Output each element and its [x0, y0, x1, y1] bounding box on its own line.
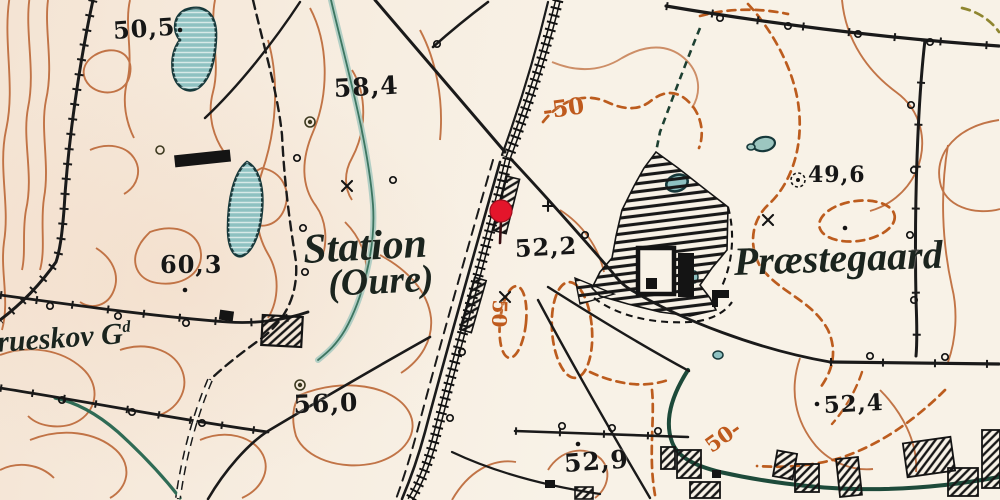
elevation-label-58-4: 58,4: [333, 71, 399, 103]
contour-label-50-top: -50: [541, 92, 586, 125]
elevation-label-60-3: 60,3: [160, 250, 222, 279]
elevation-label-52-9: 52,9: [563, 444, 630, 477]
elevation-label-52-2: 52,2: [514, 231, 578, 263]
road-east: [915, 40, 925, 356]
elevation-label-49-6: 49,6: [808, 162, 866, 188]
grueskov-farm-building: [261, 315, 303, 347]
contour-label-50-mid: 50: [487, 299, 512, 328]
red-map-pin-icon[interactable]: [486, 195, 516, 247]
tree-lined-path: [656, 28, 700, 152]
elevation-label-50-5: 50,5: [112, 12, 176, 45]
stream-southwest: [55, 398, 180, 498]
elevation-label-56-0: 56,0: [293, 388, 359, 419]
place-label-oure: (Oure): [327, 256, 435, 305]
elevation-label-52-4: 52,4: [823, 389, 884, 419]
benchmark-symbol: [791, 173, 805, 187]
road-to-praestegaard: [510, 158, 628, 288]
map-canvas[interactable]: 50,5 58,4 -50 60,3 Station (Oure) 52,2 4…: [0, 0, 1000, 500]
place-label-grueskov-suffix: d: [122, 317, 132, 337]
place-label-praestegaard: Præstegaard: [733, 231, 943, 285]
